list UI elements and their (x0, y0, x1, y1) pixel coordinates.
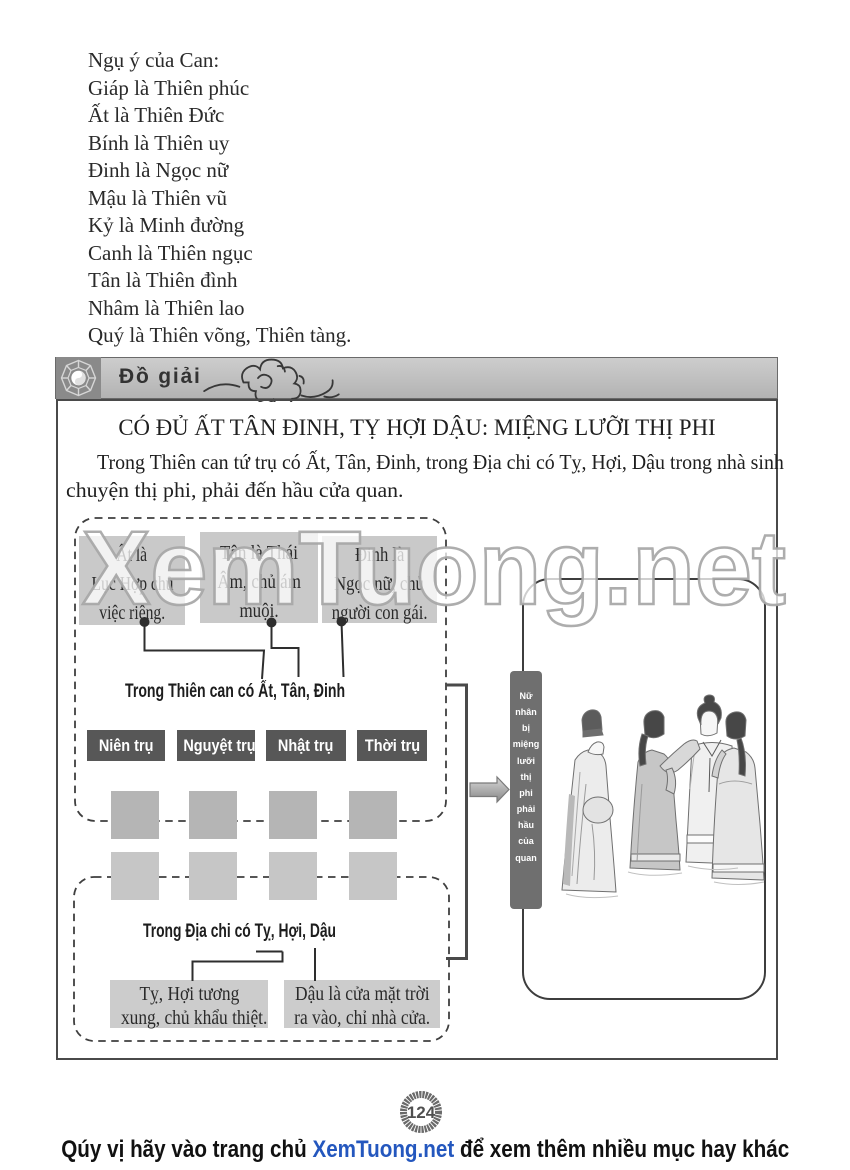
svg-text:124: 124 (407, 1103, 436, 1122)
svg-text:XemTuong.net: XemTuong.net (82, 510, 786, 627)
